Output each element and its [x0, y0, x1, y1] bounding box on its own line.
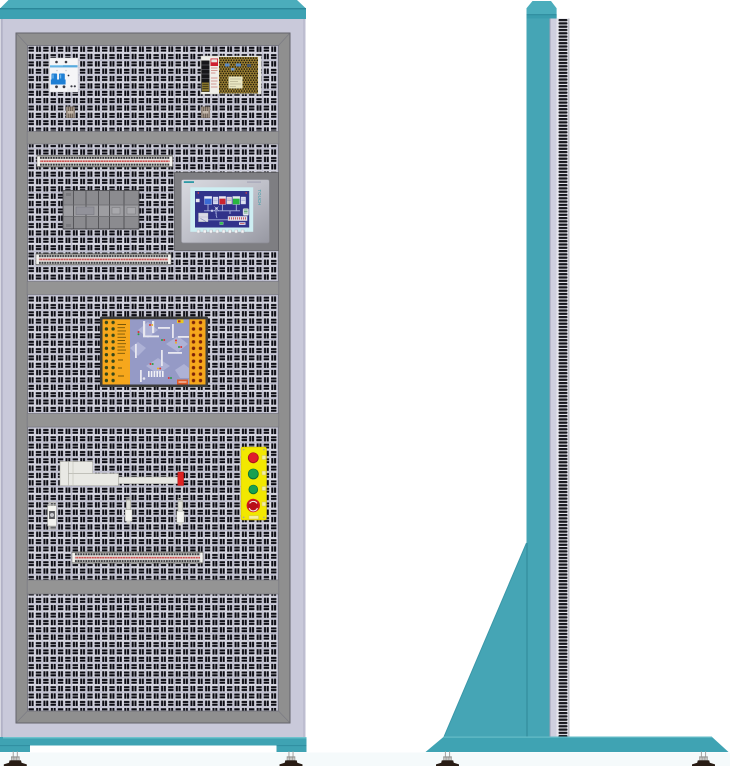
svg-text:TOUCH: TOUCH [257, 190, 262, 206]
